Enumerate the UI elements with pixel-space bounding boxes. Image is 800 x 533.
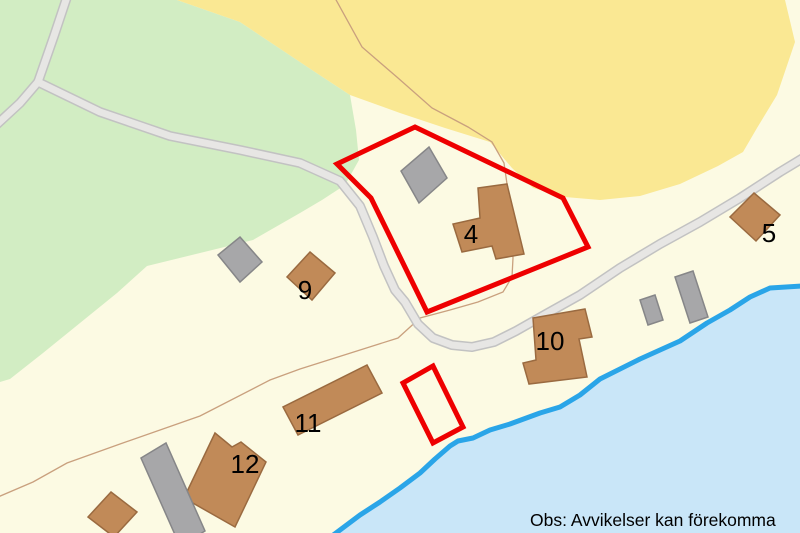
property-map-canvas[interactable]: 4 5 9 10 11 12 Obs: Avvikelser kan förek… xyxy=(0,0,800,533)
disclaimer-text: Obs: Avvikelser kan förekomma xyxy=(530,510,776,530)
label-building-12: 12 xyxy=(231,449,260,479)
label-building-4: 4 xyxy=(464,219,478,249)
label-building-11: 11 xyxy=(295,408,322,438)
label-building-9: 9 xyxy=(298,275,312,305)
label-building-5: 5 xyxy=(762,218,776,248)
map-svg: 4 5 9 10 11 12 Obs: Avvikelser kan förek… xyxy=(0,0,800,533)
label-building-10: 10 xyxy=(536,326,565,356)
